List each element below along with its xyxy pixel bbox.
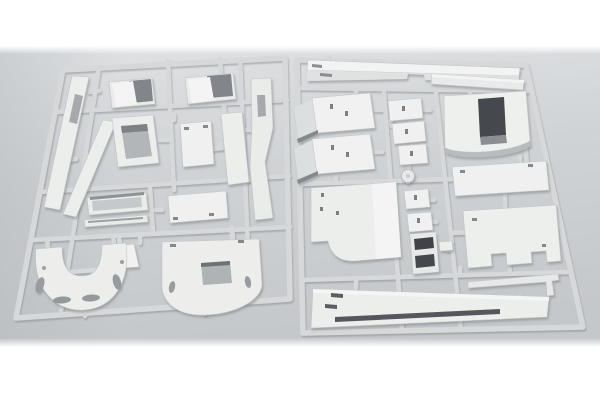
part-curved-roof-hole	[478, 97, 506, 137]
part-flat-panel-a-mark	[184, 127, 189, 130]
part-wide-panel-mark	[528, 164, 533, 167]
part-fender-u-hole-left	[42, 266, 46, 270]
part-plate-c-mark	[410, 151, 413, 156]
part-square-a-mark	[414, 195, 417, 200]
part-fender-b-face	[312, 134, 375, 174]
part-flat-panel-a-mark	[203, 125, 208, 128]
part-plate-a-mark	[402, 106, 405, 111]
top-fade	[0, 46, 600, 54]
part-plate-b-mark	[405, 129, 408, 134]
part-roof-panel-mark	[238, 240, 244, 243]
part-fender-b-mark	[346, 152, 349, 157]
part-fender-a-mark	[330, 104, 333, 109]
part-wide-panel	[452, 161, 549, 196]
part-side-rail-slot	[257, 95, 266, 117]
part-wide-panel-mark	[460, 170, 465, 173]
part-back-panel-mark	[542, 244, 546, 247]
part-floor-panel-mark	[321, 193, 324, 197]
bottom-fade	[0, 338, 600, 347]
part-back-panel-mark	[472, 218, 477, 221]
part-fender-b-mark	[331, 145, 334, 150]
part-vent-box-a-door	[112, 81, 137, 107]
part-fender-a-mark	[345, 111, 348, 116]
part-bracket	[439, 241, 453, 251]
part-disc-center	[406, 174, 410, 178]
part-roof-panel-mark	[170, 244, 176, 247]
part-fender-u-hole-right	[120, 260, 124, 264]
part-plate-a	[388, 98, 423, 121]
scene-svg	[0, 0, 600, 400]
sprue-photo	[0, 0, 600, 400]
part-step-opening-b	[415, 254, 435, 268]
part-vent-box-b-door	[188, 77, 214, 103]
part-flat-panel-b-mark	[209, 213, 214, 216]
part-step-opening-a	[414, 237, 434, 250]
part-square-b-mark	[417, 218, 420, 223]
part-floor-panel-raised	[372, 182, 401, 259]
part-fender-a-face	[312, 93, 375, 133]
part-plate-b	[392, 121, 426, 144]
part-flat-panel-b-mark	[173, 217, 178, 220]
part-floor-panel-mark	[336, 211, 339, 215]
part-floor-panel-mark	[320, 207, 323, 211]
